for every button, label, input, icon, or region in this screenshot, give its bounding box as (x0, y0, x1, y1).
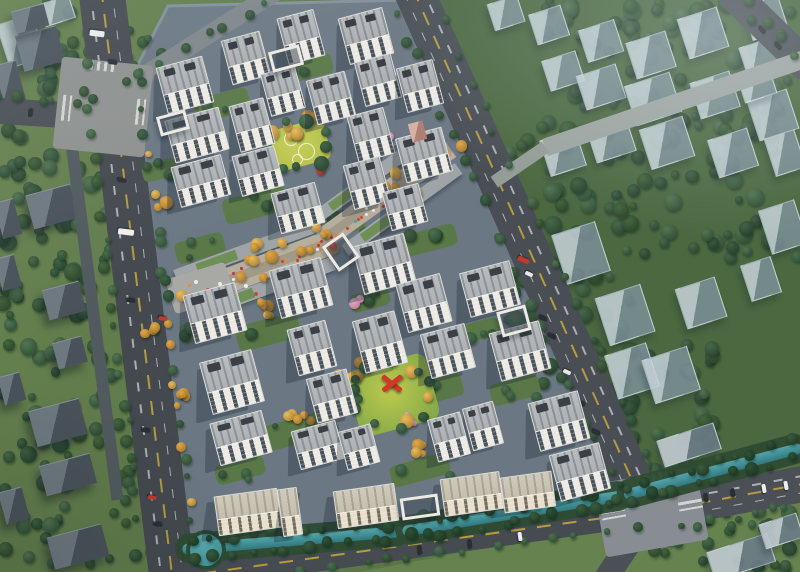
car (703, 492, 709, 502)
car (757, 25, 766, 34)
bus (118, 228, 135, 236)
car (517, 531, 522, 540)
car (141, 427, 150, 432)
aerial-site-render (0, 0, 800, 572)
car (783, 480, 789, 490)
car (108, 59, 117, 64)
lowrise-body (500, 471, 557, 514)
car (158, 315, 167, 320)
car (153, 521, 162, 526)
lowrise-building (500, 471, 557, 514)
bus (89, 29, 105, 37)
car (547, 332, 557, 339)
lowrise-building (277, 487, 303, 537)
car (147, 494, 156, 499)
car (28, 109, 32, 117)
car (538, 314, 548, 321)
car (591, 428, 601, 435)
car (525, 271, 534, 278)
car (773, 41, 782, 50)
lowrise-roof (278, 488, 300, 517)
car (117, 177, 126, 182)
car (417, 544, 422, 553)
car (126, 297, 135, 302)
lowrise-facade (282, 514, 303, 536)
car (730, 487, 736, 497)
bus (517, 255, 530, 264)
car (467, 538, 472, 547)
car (563, 369, 572, 376)
car (761, 483, 767, 493)
